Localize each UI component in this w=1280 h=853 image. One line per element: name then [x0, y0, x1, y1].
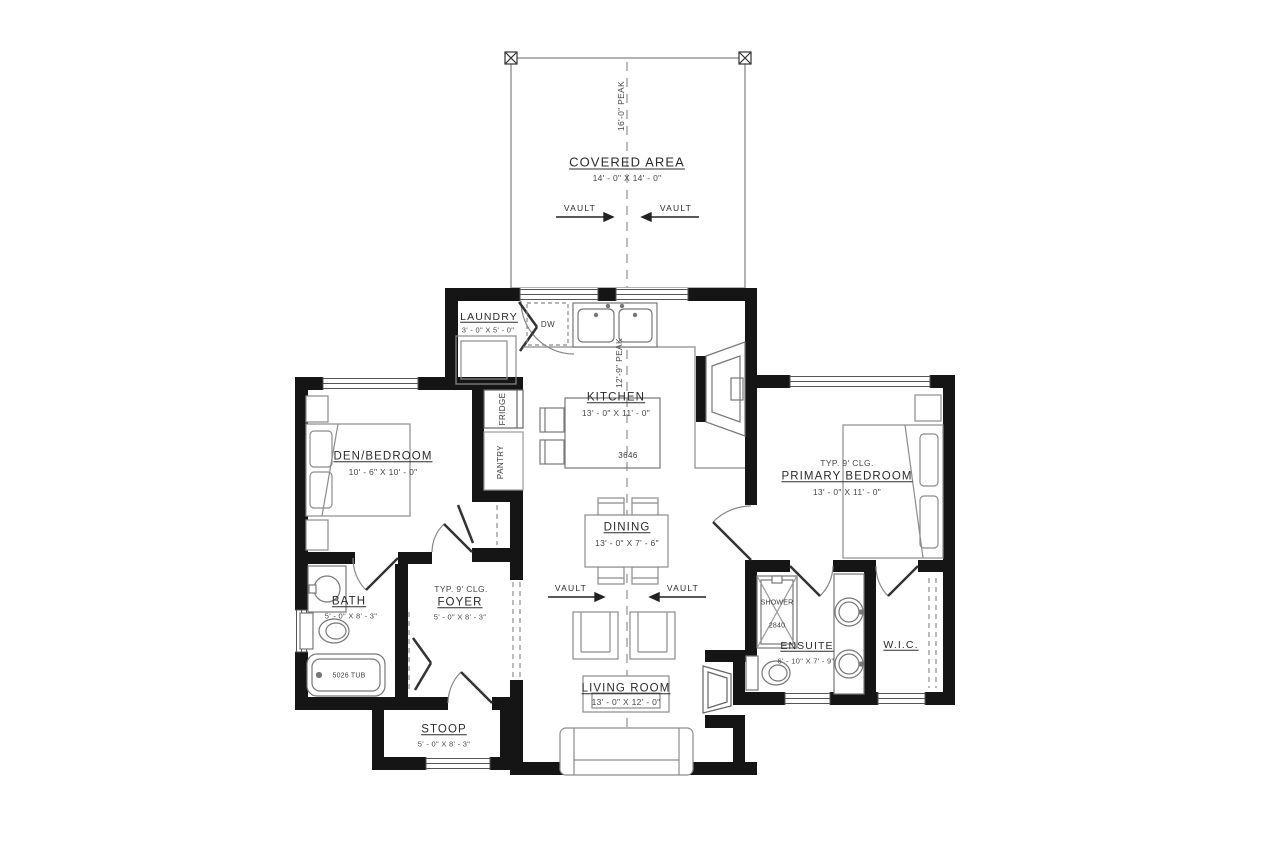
stoop-dims: 5' - 0" X 8' - 3" [418, 740, 470, 748]
nightstand [306, 396, 328, 422]
island-stools [540, 408, 564, 464]
shower-label: SHOWER [761, 600, 794, 607]
vault-label-mid-right: VAULT [667, 584, 699, 593]
vault-label-mid-left: VAULT [555, 584, 587, 593]
den-bedroom-dims: 10' - 6" X 10' - 0" [349, 468, 418, 477]
wic-rod-dashes [929, 578, 936, 688]
bath-label: BATH [332, 596, 366, 608]
kitchen-fixtures [523, 303, 745, 468]
living-room-label: LIVING ROOM [582, 683, 671, 695]
armchair [630, 612, 675, 659]
wic-label: W.I.C. [883, 640, 918, 651]
fridge-label: FRIDGE [499, 393, 507, 426]
island-size-label: 3646 [618, 452, 637, 460]
peak-upper-annotation: 16'-0" PEAK [617, 81, 626, 131]
laundry-label: LAUNDRY [460, 312, 518, 323]
armchair [573, 612, 618, 659]
sofa [560, 728, 693, 775]
dishwasher-label: DW [541, 321, 555, 329]
floor-plan: COVERED AREA 14' - 0" X 14' - 0" 16'-0" … [0, 0, 1280, 853]
tub-label: 5026 TUB [333, 673, 366, 680]
ensuite-vanity [834, 574, 864, 694]
ensuite-label: ENSUITE [780, 641, 833, 652]
dining-dims: 13' - 0" X 7' - 6" [595, 539, 659, 548]
primary-ceiling-note: TYP. 9' CLG. [820, 459, 874, 468]
shower [757, 576, 797, 648]
foyer-dims: 5' - 0" X 8' - 3" [434, 613, 486, 621]
primary-bedroom-label: PRIMARY BEDROOM [781, 471, 912, 483]
dining-label: DINING [604, 522, 651, 534]
covered-area-dims: 14' - 0" X 14' - 0" [593, 174, 662, 183]
kitchen-label: KITCHEN [587, 392, 645, 404]
bath-dims: 5' - 0" X 8' - 3" [325, 612, 377, 620]
foyer-label: FOYER [437, 597, 482, 609]
fireplace [703, 666, 731, 713]
kitchen-dims: 13' - 0" X 11' - 0" [582, 409, 650, 418]
range [696, 342, 745, 436]
foyer-ceiling-note: TYP. 9' CLG. [434, 585, 488, 594]
laundry-dims: 3' - 0" X 5' - 0" [462, 326, 514, 334]
stoop-label: STOOP [421, 724, 467, 736]
dresser [306, 520, 328, 550]
pantry-label: PANTRY [497, 445, 505, 479]
nightstand [915, 395, 941, 421]
covered-area-label: COVERED AREA [569, 156, 685, 169]
vault-label-top-left: VAULT [564, 204, 596, 213]
laundry-appliance [456, 336, 516, 384]
vault-label-top-right: VAULT [660, 204, 692, 213]
primary-bedroom-dims: 13' - 0" X 11' - 0" [813, 488, 881, 497]
foyer-opening-dashes [513, 582, 520, 678]
floor-plan-drawing [0, 0, 1280, 853]
ensuite-dims: 6' - 10" X 7' - 9" [778, 657, 835, 665]
living-room-dims: 13' - 0" X 12' - 0" [592, 698, 661, 707]
covered-area-structure [505, 52, 751, 288]
peak-lower-annotation: 12'-9" PEAK [615, 338, 624, 388]
shower-size-label: 2840 [769, 623, 785, 630]
ensuite-fixtures [746, 574, 864, 694]
den-bedroom-label: DEN/BEDROOM [334, 451, 433, 463]
